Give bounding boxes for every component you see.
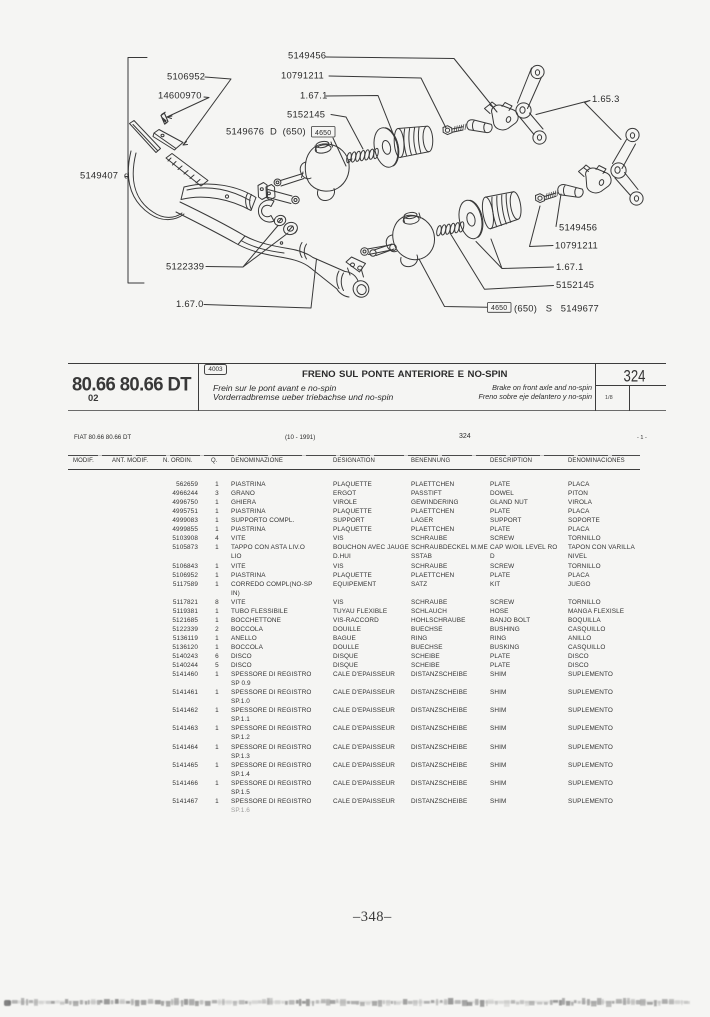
svg-text:5149456: 5149456	[559, 222, 597, 233]
svg-text:5152145: 5152145	[556, 279, 594, 290]
svg-text:5149456: 5149456	[288, 50, 326, 61]
svg-text:5152145: 5152145	[287, 109, 325, 120]
svg-text:4650: 4650	[491, 305, 507, 312]
svg-text:10791211: 10791211	[555, 239, 598, 250]
svg-text:10791211: 10791211	[281, 70, 324, 81]
svg-text:1.67.0: 1.67.0	[176, 298, 204, 309]
svg-text:4650: 4650	[315, 130, 331, 137]
svg-text:5106952: 5106952	[167, 71, 205, 82]
svg-text:1.65.3: 1.65.3	[592, 93, 620, 104]
svg-text:(650) S 5149677: (650) S 5149677	[514, 303, 599, 314]
svg-text:1.67.1: 1.67.1	[300, 90, 328, 101]
svg-text:14600970: 14600970	[158, 90, 202, 101]
svg-text:5122339: 5122339	[166, 261, 204, 272]
svg-text:1.67.1: 1.67.1	[556, 261, 584, 272]
svg-text:5149407 d: 5149407 d	[80, 170, 129, 181]
svg-text:5149676 D (650): 5149676 D (650)	[226, 126, 306, 137]
